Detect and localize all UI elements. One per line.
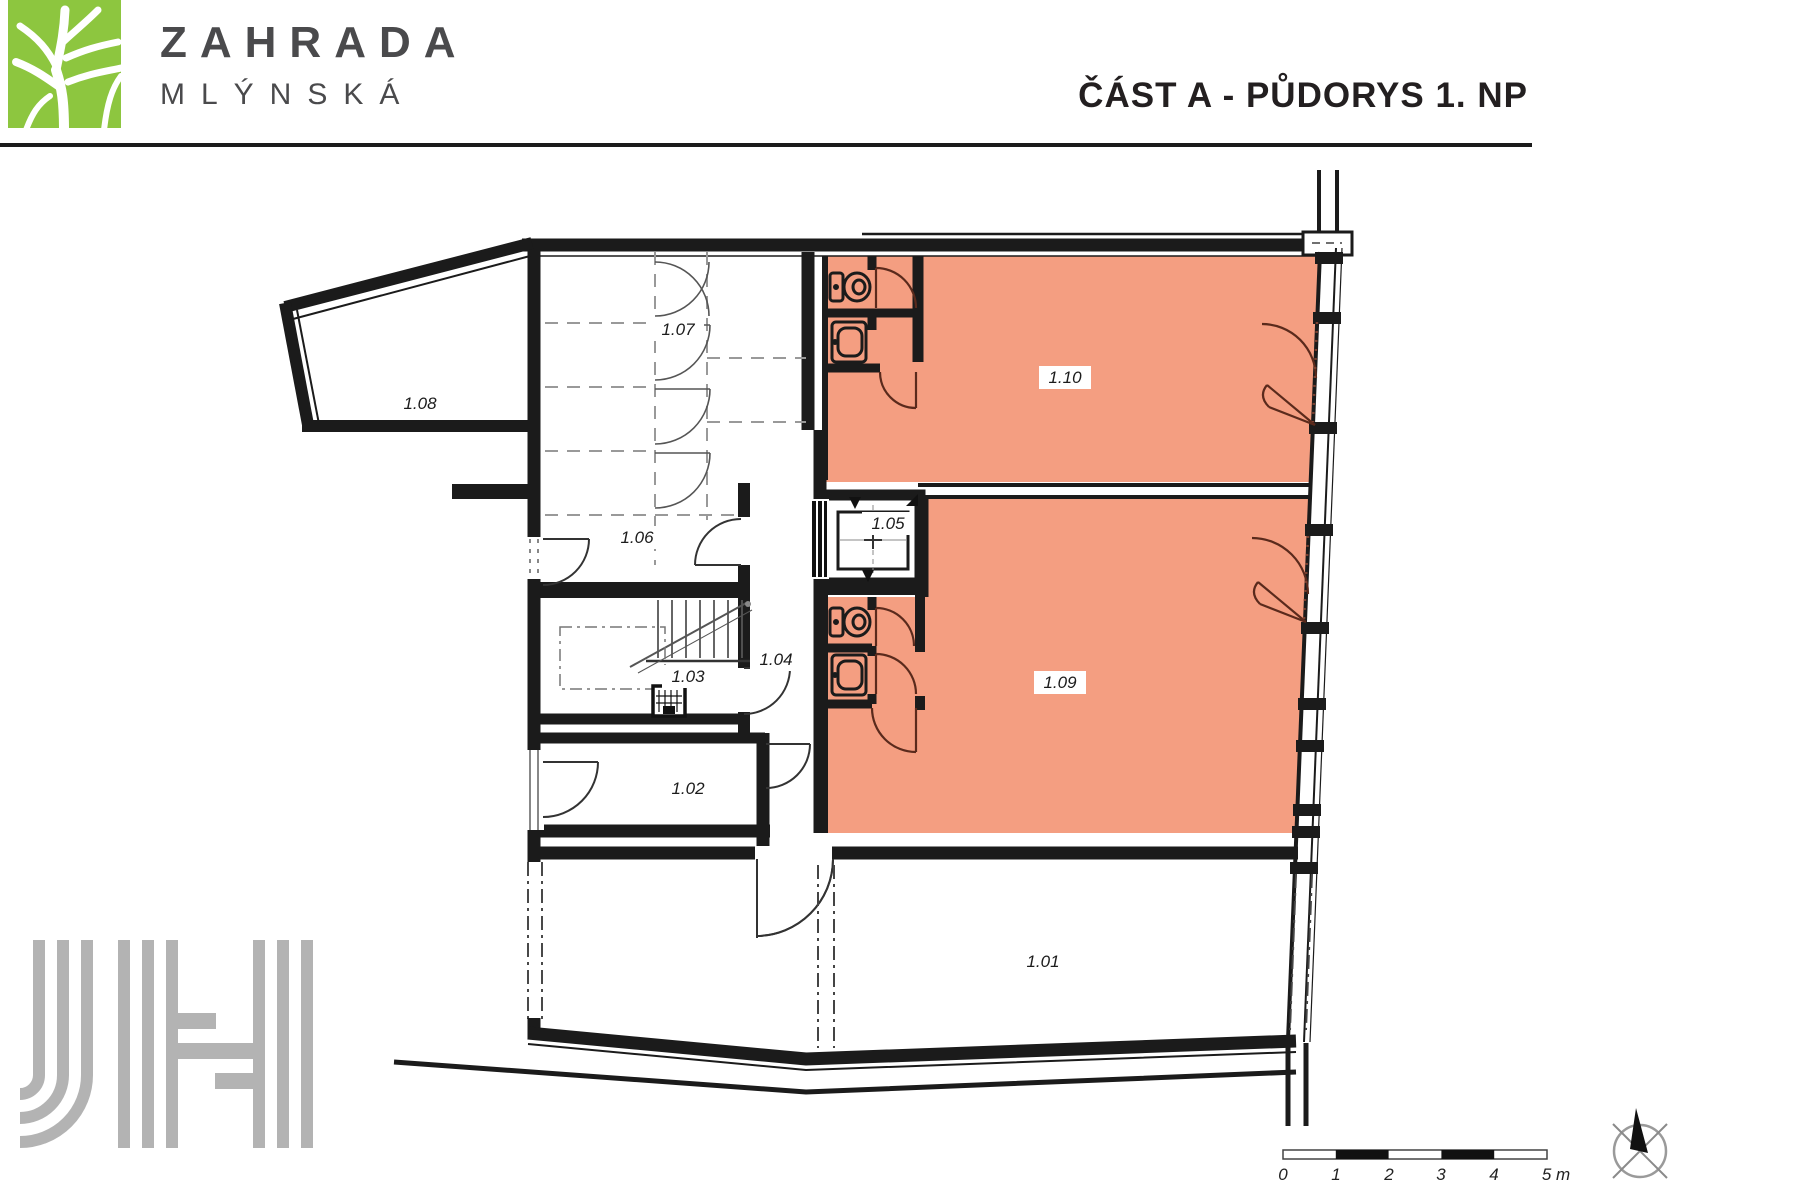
cubicle-dashed-lines <box>545 252 806 565</box>
room-label-1-09: 1.09 <box>1034 671 1086 694</box>
svg-text:0: 0 <box>1278 1165 1288 1184</box>
floor-plan-sheet: ZAHRADA MLÝNSKÁ ČÁST A - PŮDORYS 1. NP <box>0 0 1800 1184</box>
svg-text:5 m: 5 m <box>1542 1165 1570 1184</box>
room-label-1-06: 1.06 <box>611 526 663 549</box>
svg-text:1.08: 1.08 <box>403 394 437 413</box>
svg-text:1.05: 1.05 <box>871 514 905 533</box>
room-label-1-05: 1.05 <box>862 512 914 535</box>
corridor-door-gap <box>755 846 832 860</box>
room-label-1-04: 1.04 <box>750 648 802 671</box>
room-label-1-03: 1.03 <box>662 665 714 688</box>
room-label-1-02: 1.02 <box>662 777 714 800</box>
cubicle-door-arcs <box>655 262 710 508</box>
svg-text:1.09: 1.09 <box>1043 673 1077 692</box>
svg-text:1.07: 1.07 <box>661 320 695 339</box>
svg-text:1.06: 1.06 <box>620 528 654 547</box>
room-label-1-10: 1.10 <box>1039 366 1091 389</box>
scale-bar: 0 1 2 3 4 5 m <box>1278 1150 1570 1184</box>
room-label-1-08: 1.08 <box>394 392 446 415</box>
north-compass-icon <box>1613 1108 1667 1178</box>
room-label-1-07: 1.07 <box>652 318 704 341</box>
svg-text:1.01: 1.01 <box>1026 952 1059 971</box>
jh-logo <box>15 930 325 1158</box>
svg-text:1.03: 1.03 <box>671 667 705 686</box>
svg-text:3: 3 <box>1436 1165 1446 1184</box>
svg-text:1.02: 1.02 <box>671 779 705 798</box>
svg-text:1.04: 1.04 <box>759 650 792 669</box>
corridor-door-arc <box>757 859 833 938</box>
elevator-icon <box>810 494 920 583</box>
room-label-1-01: 1.01 <box>1017 950 1069 973</box>
interior-door-arcs <box>543 519 833 938</box>
svg-text:4: 4 <box>1489 1165 1498 1184</box>
electrical-box-icon <box>653 686 685 716</box>
svg-text:2: 2 <box>1383 1165 1394 1184</box>
svg-text:1.10: 1.10 <box>1048 368 1082 387</box>
stairs-icon <box>560 600 752 689</box>
svg-text:1: 1 <box>1331 1165 1340 1184</box>
